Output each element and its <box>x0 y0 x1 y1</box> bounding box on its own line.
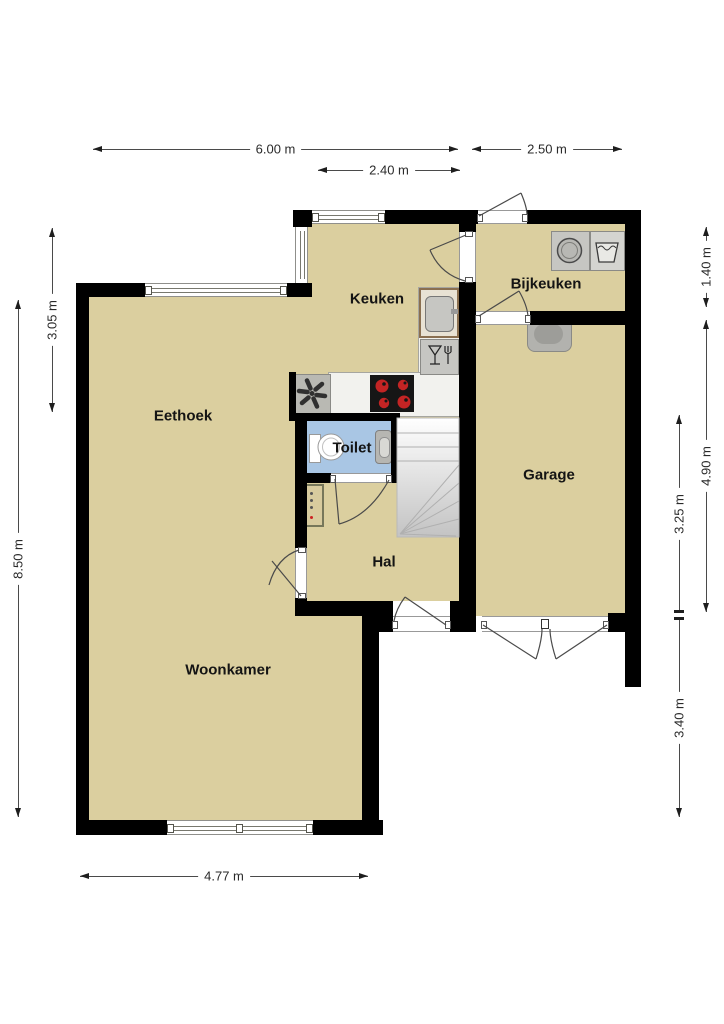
wall-corner-block <box>362 601 393 632</box>
door-opening-hal-woonkamer <box>295 548 307 598</box>
room-label-toilet: Toilet <box>333 440 372 457</box>
arrow-left-icon <box>93 146 102 152</box>
radiator-valve <box>310 516 313 519</box>
tick-icon <box>674 617 684 620</box>
radiator-icon <box>305 484 324 527</box>
door-opening-garage <box>482 616 608 632</box>
arrow-right-icon <box>359 873 368 879</box>
wall-counter-stub <box>289 372 296 421</box>
wall-hal-left-stub <box>295 598 307 616</box>
wall-toilet-right <box>391 418 400 483</box>
hand-basin-bowl <box>379 437 390 458</box>
arrow-right-icon <box>451 167 460 173</box>
kitchen-sink-basin <box>425 296 454 332</box>
washing-machine-icon <box>551 231 590 271</box>
arrow-up-icon <box>49 228 55 237</box>
arrow-up-icon <box>703 227 709 236</box>
window-frame-end <box>167 824 174 833</box>
window-frame-end <box>280 286 287 295</box>
dimension-label: 3.25 m <box>672 488 687 540</box>
window-keuken-left <box>295 227 308 283</box>
arrow-up-icon <box>15 300 21 309</box>
room-label-eethoek: Eethoek <box>154 408 212 425</box>
dimension-label: 2.50 m <box>521 142 573 157</box>
toilet-tank <box>309 434 321 463</box>
window-eethoek <box>145 283 287 297</box>
dishwasher-icon <box>420 339 459 375</box>
dimension-label: 1.40 m <box>699 241 714 293</box>
wall-bijkeuken-garage <box>530 311 641 325</box>
wall-left <box>76 283 89 835</box>
radiator-dot <box>310 506 313 509</box>
room-label-garage: Garage <box>523 467 575 484</box>
wall-center-top <box>459 210 476 232</box>
radiator-dot <box>310 492 313 495</box>
arrow-up-icon <box>703 320 709 329</box>
wall-eethoek-top-right <box>287 283 312 297</box>
dimension-label: 4.77 m <box>198 869 250 884</box>
wall-center-post <box>450 601 476 632</box>
extractor-fan-icon <box>295 374 331 415</box>
door-opening-back <box>478 210 527 224</box>
floor-garage <box>473 314 626 616</box>
arrow-up-icon <box>676 415 682 424</box>
dimension-label: 8.50 m <box>11 533 26 585</box>
window-frame-end <box>306 824 313 833</box>
arrow-left-icon <box>472 146 481 152</box>
room-label-keuken: Keuken <box>350 291 404 308</box>
room-label-hal: Hal <box>372 554 395 571</box>
window-frame-end <box>378 213 385 222</box>
dimension-label: 3.05 m <box>45 294 60 346</box>
arrow-left-icon <box>318 167 327 173</box>
window-woonkamer <box>167 820 313 835</box>
room-label-woonkamer: Woonkamer <box>185 662 271 679</box>
door-opening-toilet <box>331 473 391 483</box>
wall-garage-bottom-stub <box>608 613 628 632</box>
wall-center-main <box>459 282 476 602</box>
window-glazing <box>316 215 381 220</box>
dimension-label: 2.40 m <box>363 163 415 178</box>
arrow-down-icon <box>703 603 709 612</box>
door-opening-keuken-bijkeuken <box>459 232 476 282</box>
window-glazing <box>300 231 305 279</box>
arrow-down-icon <box>49 403 55 412</box>
tick-icon <box>674 610 684 613</box>
window-glazing <box>149 288 283 293</box>
wall-hal-left <box>295 413 307 548</box>
laundry-tub-icon <box>590 231 625 271</box>
arrow-down-icon <box>15 808 21 817</box>
arrow-right-icon <box>613 146 622 152</box>
wall-woonkamer-right <box>362 601 379 835</box>
door-opening-front <box>393 616 450 632</box>
arrow-left-icon <box>80 873 89 879</box>
wall-bottom-left <box>76 820 167 835</box>
dimension-label: 4.90 m <box>699 440 714 492</box>
floor-plan: Eethoek Keuken Bijkeuken Garage Toilet H… <box>0 0 724 1024</box>
door-opening-bijkeuken-garage <box>476 311 530 325</box>
arrow-down-icon <box>676 808 682 817</box>
garage-sink-basin <box>534 324 563 344</box>
dimension-label: 6.00 m <box>250 142 302 157</box>
window-frame-end <box>312 213 319 222</box>
radiator-dot <box>310 499 313 502</box>
window-keuken-top <box>312 210 385 224</box>
room-label-bijkeuken: Bijkeuken <box>511 276 582 293</box>
wall-top-right <box>527 210 641 224</box>
wall-top-corner <box>293 210 312 227</box>
cooktop-icon <box>370 375 414 412</box>
arrow-right-icon <box>449 146 458 152</box>
window-frame-divider <box>236 824 243 833</box>
arrow-down-icon <box>703 298 709 307</box>
faucet-icon <box>451 309 458 314</box>
dimension-label: 3.40 m <box>672 692 687 744</box>
window-frame-end <box>145 286 152 295</box>
garage-door-divider <box>541 619 549 629</box>
